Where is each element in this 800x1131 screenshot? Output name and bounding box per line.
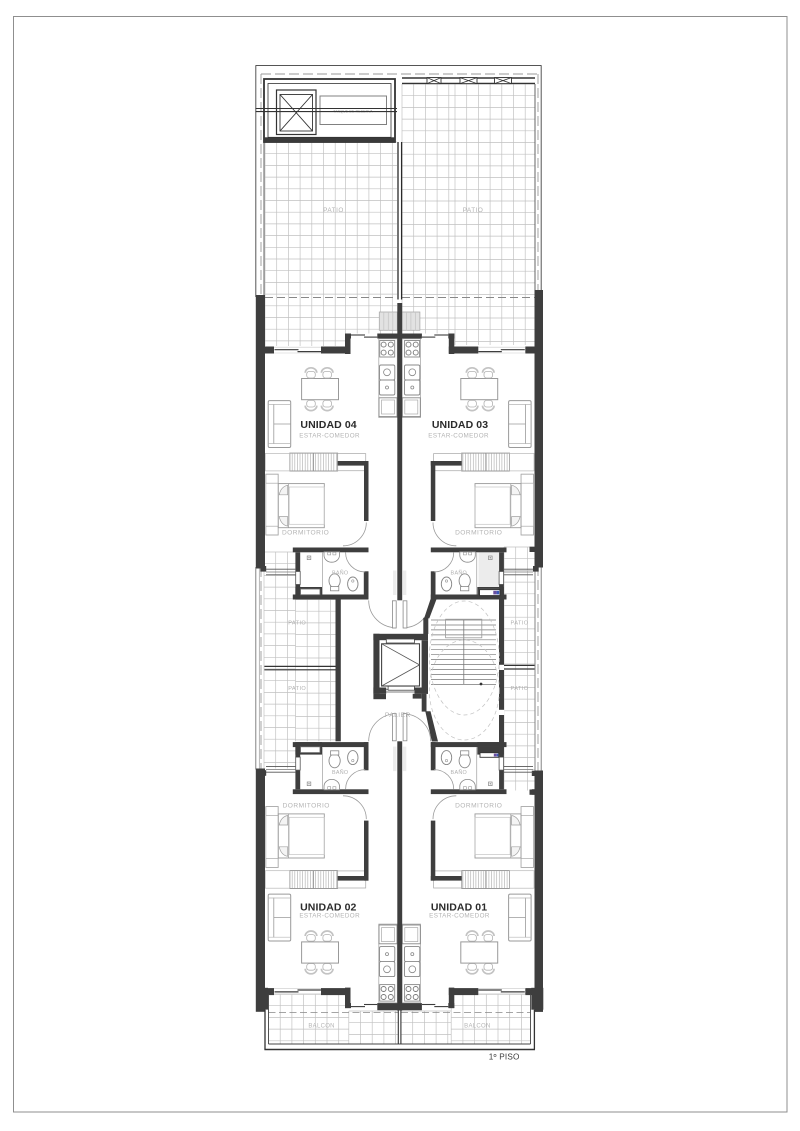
svg-text:PALIER: PALIER [385, 712, 411, 719]
svg-text:UNIDAD 04: UNIDAD 04 [300, 419, 356, 431]
svg-text:ESTAR-COMEDOR: ESTAR-COMEDOR [428, 432, 489, 439]
svg-text:UNIDAD 03: UNIDAD 03 [432, 419, 488, 431]
svg-text:BAÑO: BAÑO [451, 569, 467, 576]
svg-text:PATIO: PATIO [511, 621, 529, 627]
svg-text:ESTAR-COMEDOR: ESTAR-COMEDOR [429, 913, 490, 920]
svg-text:PATIO: PATIO [511, 686, 529, 692]
svg-text:DORMITORIO: DORMITORIO [455, 803, 502, 810]
svg-text:DORMITORIO: DORMITORIO [283, 803, 330, 810]
svg-text:BALCON: BALCON [308, 1024, 334, 1030]
svg-text:DORMITORIO: DORMITORIO [455, 530, 502, 537]
svg-text:PATIO: PATIO [323, 207, 344, 214]
svg-text:DORMITORIO: DORMITORIO [282, 530, 329, 537]
svg-text:PATIO: PATIO [463, 207, 484, 214]
svg-text:BAÑO: BAÑO [332, 569, 348, 576]
svg-text:1º PISO: 1º PISO [489, 1053, 520, 1062]
svg-text:BAÑO: BAÑO [451, 769, 467, 776]
svg-text:PATIO: PATIO [288, 621, 306, 627]
svg-text:ESTAR-COMEDOR: ESTAR-COMEDOR [299, 432, 360, 439]
svg-text:PATIO: PATIO [288, 686, 306, 692]
svg-text:ESTAR-COMEDOR: ESTAR-COMEDOR [299, 913, 360, 920]
svg-text:BAÑO: BAÑO [332, 769, 348, 776]
svg-text:BALCON: BALCON [464, 1024, 490, 1030]
